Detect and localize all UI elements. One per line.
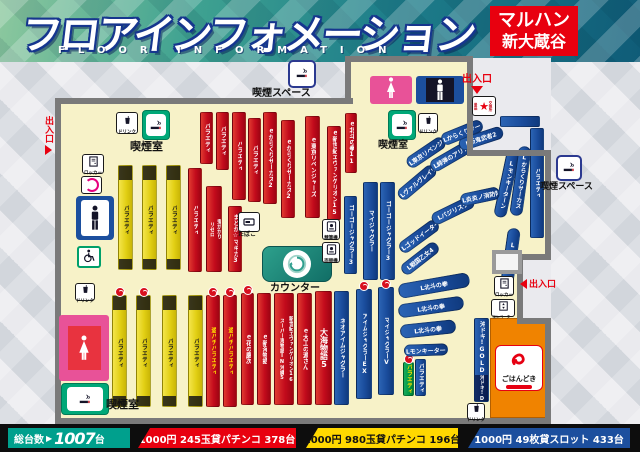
machine-name-label: L北斗の拳 bbox=[414, 323, 443, 335]
machine-name-label: 新世紀エヴァンゲリオン16 bbox=[284, 316, 293, 383]
machine-strip-segments: バラエティ bbox=[167, 166, 180, 269]
wall bbox=[545, 150, 551, 260]
machine-strip: バラエティ bbox=[200, 112, 213, 164]
machine-strip-segments: バラエティ bbox=[119, 166, 132, 269]
machine-strip-segment: 沖ドキ!GOLD bbox=[475, 319, 488, 375]
service-machine-box: 両替機 bbox=[322, 242, 340, 263]
arrow-icon: ▶ bbox=[46, 434, 52, 443]
entrance-arrow-icon bbox=[471, 86, 483, 94]
machine-name-label: バラエティ bbox=[193, 338, 199, 368]
machine-strip: Lモンキーターン bbox=[404, 343, 448, 357]
machine-strip: バラエティ bbox=[162, 295, 177, 407]
entrance-arrow-icon bbox=[520, 279, 527, 289]
machine-strip-segment bbox=[113, 296, 126, 310]
machine-name-label: L北斗の拳 bbox=[420, 279, 449, 293]
machine-strip: バラエティ bbox=[188, 168, 202, 272]
tobacco-box: たばこ bbox=[238, 212, 258, 238]
machine-strip: アイムジャグラーEX bbox=[356, 289, 372, 399]
machine-name-label: L北斗の拳 bbox=[417, 301, 446, 314]
machine-strip: 大海物語5 bbox=[315, 291, 332, 405]
male-icon bbox=[81, 200, 108, 236]
machine-strip-segments: バラエティ bbox=[113, 296, 126, 406]
machine-name-label: 遊パチバラエティ bbox=[227, 327, 233, 375]
machine-icon bbox=[326, 217, 337, 236]
machine-name-label: ｅからくりサーカス2 bbox=[285, 139, 291, 200]
area-label: 喫煙室 bbox=[378, 141, 408, 151]
header-banner: フロアインフォメーション FLOOR INFORMATION マルハン 新大蔵谷 bbox=[0, 0, 640, 62]
machine-strip-segment bbox=[119, 166, 132, 180]
restaurant-logo-icon bbox=[506, 347, 532, 373]
machine-strip-segments: バラエティ bbox=[137, 296, 150, 406]
machine-strip: ｅ新世紀エヴァンゲリオン15 bbox=[327, 126, 341, 220]
page-subtitle: FLOOR INFORMATION bbox=[58, 45, 399, 56]
smoking-icon bbox=[294, 65, 310, 84]
total-units-badge: 総台数 ▶ 1007 台 bbox=[8, 428, 130, 448]
total-units-unit: 台 bbox=[95, 431, 105, 446]
machine-strip: バラエティ bbox=[248, 118, 261, 202]
drink-icon bbox=[81, 280, 90, 299]
machine-strip: ネオアイムジャグラー bbox=[334, 291, 349, 405]
entrance-label: 出入口 bbox=[462, 70, 492, 85]
machine-strip-segment bbox=[163, 296, 176, 310]
drink-label: ドリンク bbox=[467, 419, 485, 424]
machine-strip: バラエティ bbox=[136, 295, 151, 407]
machine-name-label: ゴーゴージャグラー3 bbox=[385, 201, 391, 262]
wall bbox=[345, 56, 351, 104]
smoking-icon bbox=[561, 159, 577, 178]
machine-name-label: スーパー海物語IN沖縄5 bbox=[275, 318, 284, 381]
machine-name-label: アイムジャグラーEX bbox=[361, 313, 367, 375]
machine-strip: マイジャグラー bbox=[363, 182, 378, 280]
machine-name-label: バラエティ bbox=[204, 123, 210, 153]
entrance-arrow-icon bbox=[45, 145, 52, 155]
machine-strip: ｅからくりサーカス2 bbox=[281, 120, 295, 218]
restroom-male-box bbox=[76, 196, 114, 240]
machine-strip: バラエティ bbox=[142, 165, 157, 270]
smoking-icon bbox=[392, 114, 412, 136]
floor-map: バラエティバラエティバラエティバラエティリゼロ鬼がかりまどか☆マギカ3バラエティ… bbox=[0, 62, 640, 424]
machine-strip: ｅ花の慶次 bbox=[241, 293, 254, 405]
drink-label: ドリンク bbox=[76, 300, 94, 305]
machine-strip-segment: バラエティ bbox=[119, 180, 132, 259]
elevator-label: エレベーター bbox=[493, 316, 514, 320]
rate-badge-icon bbox=[359, 281, 369, 291]
entrance-label: 出入口 bbox=[42, 116, 55, 143]
drink-label: ドリンク bbox=[419, 131, 437, 136]
entrance-marker: 出入口 bbox=[520, 277, 556, 290]
machine-strip: バラエティ bbox=[188, 295, 203, 407]
machine-name-label: リゼロ bbox=[207, 222, 214, 237]
machine-strip: ｅ北斗の拳11 bbox=[345, 113, 357, 173]
machine-name-label: バラエティ bbox=[406, 364, 412, 394]
machine-strip-segment bbox=[143, 166, 156, 180]
machine-strip-segment: 沖ドキ!DUO bbox=[475, 375, 488, 401]
entrance-marker: 出入口 bbox=[42, 116, 55, 155]
machine-strip: バラエティ bbox=[415, 359, 426, 396]
restaurant-sub-badge bbox=[506, 385, 532, 389]
member-logo-icon bbox=[85, 178, 99, 192]
machine-strip-segment bbox=[119, 259, 132, 269]
machine-strip-segments: バラエティ bbox=[143, 166, 156, 269]
rate-badge-icon bbox=[139, 287, 149, 297]
machine-strip-segment bbox=[137, 296, 150, 310]
machine-name-label: ゴーゴージャグラー3 bbox=[348, 205, 354, 266]
machine-strip: バラエティ bbox=[118, 165, 133, 270]
tobacco-icon bbox=[238, 212, 260, 232]
machine-strip-segment: バラエティ bbox=[137, 310, 150, 396]
store-name-badge: マルハン 新大蔵谷 bbox=[490, 6, 578, 56]
restroom-female-box bbox=[59, 315, 109, 381]
machine-strip-segment: バラエティ bbox=[163, 310, 176, 396]
machine-strip: バラエティ bbox=[216, 112, 229, 170]
rate-info-badge: 1000円 49枚貸スロット 433台 bbox=[468, 428, 630, 448]
machine-strip: 遊パチバラエティ bbox=[223, 295, 237, 407]
drink-box: ドリンク bbox=[467, 403, 485, 420]
machine-name-label: ネオアイムジャグラー bbox=[339, 318, 345, 378]
wall bbox=[467, 150, 551, 156]
machine-strip: スーパー海物語IN沖縄5新世紀エヴァンゲリオン16 bbox=[274, 293, 294, 405]
machine-name-label: バラエティ bbox=[117, 338, 123, 368]
machine-icon bbox=[326, 240, 337, 259]
machine-strip-columns: リゼロ鬼がかり bbox=[207, 187, 221, 271]
machine-name-label: ｅ新海物語 bbox=[261, 334, 267, 364]
store-name-line1: マルハン bbox=[490, 10, 578, 33]
machine-strip-segment: バラエティ bbox=[143, 180, 156, 259]
area-label: 喫煙スペース bbox=[252, 89, 311, 99]
wall bbox=[345, 56, 473, 62]
machine-name-label: ｅ大工の源さん bbox=[302, 328, 308, 370]
locker-icon bbox=[88, 152, 99, 171]
machine-strip-segment bbox=[167, 166, 180, 180]
female-icon bbox=[383, 77, 399, 103]
machine-strip: 遊パチバラエティ bbox=[206, 295, 220, 407]
machine-strip-segment bbox=[167, 259, 180, 269]
machine-strip-segment: バラエティ bbox=[167, 180, 180, 259]
machine-name-label: ｅ北斗の拳11 bbox=[348, 121, 354, 165]
machine-strip: バラエティ bbox=[232, 112, 246, 200]
wheelchair-icon bbox=[82, 248, 96, 267]
restaurant-box: ごはんどき bbox=[490, 318, 548, 418]
machine-name-label: マイジャグラー bbox=[368, 210, 374, 252]
service-machine-label: 両替機 bbox=[324, 260, 338, 265]
smoking-room-box bbox=[388, 110, 416, 140]
smoking-icon bbox=[146, 114, 166, 136]
machine-strip: ｅ新海物語 bbox=[257, 293, 271, 405]
prize-exchange-label: 交換所 bbox=[489, 101, 494, 112]
machine-name-label: バラエティ bbox=[147, 205, 153, 235]
machine-name-label: 鬼がかり bbox=[214, 219, 221, 239]
machine-strip: ゴーゴージャグラー3 bbox=[344, 196, 357, 274]
machine-name-label: バラエティ bbox=[171, 205, 177, 235]
machine-strip-segment: バラエティ bbox=[113, 310, 126, 396]
wall bbox=[545, 318, 551, 424]
rate-badge-icon bbox=[208, 287, 218, 297]
area-label: 喫煙室 bbox=[130, 141, 163, 152]
member-logo-box bbox=[81, 176, 102, 194]
restaurant-name-label: ごはんどき bbox=[502, 374, 537, 384]
restaurant-logo: ごはんどき bbox=[495, 345, 543, 391]
smoking-space-box bbox=[556, 155, 582, 181]
restroom-male-box bbox=[416, 76, 464, 104]
machine-name-label: Lモンキーターン bbox=[406, 345, 447, 355]
rate-badge-icon bbox=[381, 279, 391, 289]
machine-name-label: マイジャグラーV bbox=[383, 317, 389, 366]
entrance-label: 出入口 bbox=[529, 277, 556, 290]
elevator-icon bbox=[498, 296, 509, 315]
machine-strip: バラエティ bbox=[112, 295, 127, 407]
machine-strip: ｅ東京リベンジャーズ bbox=[305, 116, 320, 218]
drink-box: ドリンク bbox=[75, 283, 95, 301]
smoking-room-box bbox=[61, 383, 109, 415]
machine-strip-segment bbox=[189, 396, 202, 406]
machine-strip: ゴーゴージャグラー3 bbox=[380, 182, 395, 280]
machine-name-label: 沖ドキ!GOLD bbox=[479, 321, 485, 374]
tobacco-label: たばこ bbox=[238, 232, 258, 238]
area-label: 喫煙室 bbox=[106, 399, 139, 410]
accessible-box bbox=[77, 246, 101, 268]
machine-name-label: バラエティ bbox=[252, 145, 258, 175]
machine-name-label: ｅからくりサーカス2 bbox=[267, 128, 273, 189]
area-label: カウンター bbox=[270, 284, 320, 294]
total-units-label: 総台数 bbox=[14, 431, 44, 446]
machine-strip: ｅ大工の源さん bbox=[297, 293, 312, 405]
store-name-line2: 新大蔵谷 bbox=[490, 32, 578, 52]
machine-strip-segment bbox=[163, 396, 176, 406]
machine-strip: バラエティ bbox=[166, 165, 181, 270]
machine-strip-segment: バラエティ bbox=[189, 310, 202, 396]
stats-bar: 総台数 ▶ 1007 台 1000円 245玉貸パチンコ 378台1000円 9… bbox=[0, 424, 640, 452]
exit-door bbox=[492, 250, 522, 274]
machine-strip bbox=[500, 116, 540, 127]
machine-strip: 沖ドキ!GOLD沖ドキ!DUO bbox=[474, 318, 489, 402]
locker-box: ロッカー bbox=[494, 276, 514, 296]
rate-info-badge: 1000円 980玉貸パチンコ 196台 bbox=[306, 428, 458, 448]
drink-box: ドリンク bbox=[418, 113, 438, 133]
drink-box: ドリンク bbox=[116, 112, 138, 134]
machine-name-label: 大海物語5 bbox=[320, 328, 328, 369]
male-icon bbox=[426, 78, 454, 102]
machine-strip: バラエティ bbox=[403, 362, 414, 396]
rate-info-badge: 1000円 245玉貸パチンコ 378台 bbox=[138, 428, 296, 448]
machine-strip: リゼロ鬼がかり bbox=[206, 186, 222, 272]
smoking-room-box bbox=[142, 110, 170, 140]
service-machine-box: 精算機 bbox=[322, 219, 340, 240]
machine-name-label: バラエティ bbox=[123, 205, 129, 235]
locker-icon bbox=[499, 274, 510, 293]
rate-badge-icon bbox=[115, 287, 125, 297]
machine-strip-segment bbox=[189, 296, 202, 310]
prize-exchange-box: 景品★交換所 bbox=[472, 96, 496, 116]
machine-name-label: ｅ花の慶次 bbox=[245, 334, 251, 364]
area-label: 喫煙スペース bbox=[540, 183, 593, 192]
machine-strip: ｅからくりサーカス2 bbox=[263, 112, 277, 204]
smoking-icon bbox=[67, 387, 103, 410]
drink-icon bbox=[472, 399, 481, 418]
drink-label: ドリンク bbox=[118, 131, 136, 136]
female-icon bbox=[68, 326, 101, 370]
machine-name-label: バラエティ bbox=[167, 338, 173, 368]
machine-name-label: バラエティ bbox=[192, 205, 198, 235]
smoking-space-box bbox=[288, 60, 316, 88]
machine-strip-segments: バラエティ bbox=[189, 296, 202, 406]
drink-icon bbox=[123, 111, 132, 130]
star-icon: ★ bbox=[479, 101, 489, 112]
machine-name-label: ｅ新世紀エヴァンゲリオン15 bbox=[331, 130, 337, 216]
rate-badge-icon bbox=[225, 287, 235, 297]
elevator-box: エレベーター bbox=[491, 299, 515, 317]
locker-box: ロッカー bbox=[82, 154, 104, 174]
entrance-marker: 出入口 bbox=[462, 70, 492, 94]
total-units-value: 1007 bbox=[54, 429, 95, 448]
machine-strip: マイジャグラーV bbox=[378, 287, 394, 395]
machine-name-label: 沖ドキ!DUO bbox=[479, 375, 484, 400]
rate-badge-icon bbox=[243, 285, 253, 295]
counter-logo-icon bbox=[283, 250, 311, 278]
drink-icon bbox=[424, 111, 433, 130]
machine-strip-segments: 沖ドキ!GOLD沖ドキ!DUO bbox=[475, 319, 488, 401]
machine-name-label: バラエティ bbox=[236, 141, 242, 171]
machine-name-label: ｅ東京リベンジャーズ bbox=[310, 137, 316, 197]
machine-strip-columns: スーパー海物語IN沖縄5新世紀エヴァンゲリオン16 bbox=[275, 294, 293, 404]
restroom-female-box bbox=[370, 76, 412, 104]
machine-name-label: バラエティ bbox=[141, 338, 147, 368]
machine-name-label: バラエティ bbox=[220, 126, 226, 156]
machine-strip-segment bbox=[143, 259, 156, 269]
machine-name-label: 遊パチバラエティ bbox=[210, 327, 216, 375]
machine-strip-segments: バラエティ bbox=[163, 296, 176, 406]
machine-name-label: バラエティ bbox=[418, 363, 424, 393]
